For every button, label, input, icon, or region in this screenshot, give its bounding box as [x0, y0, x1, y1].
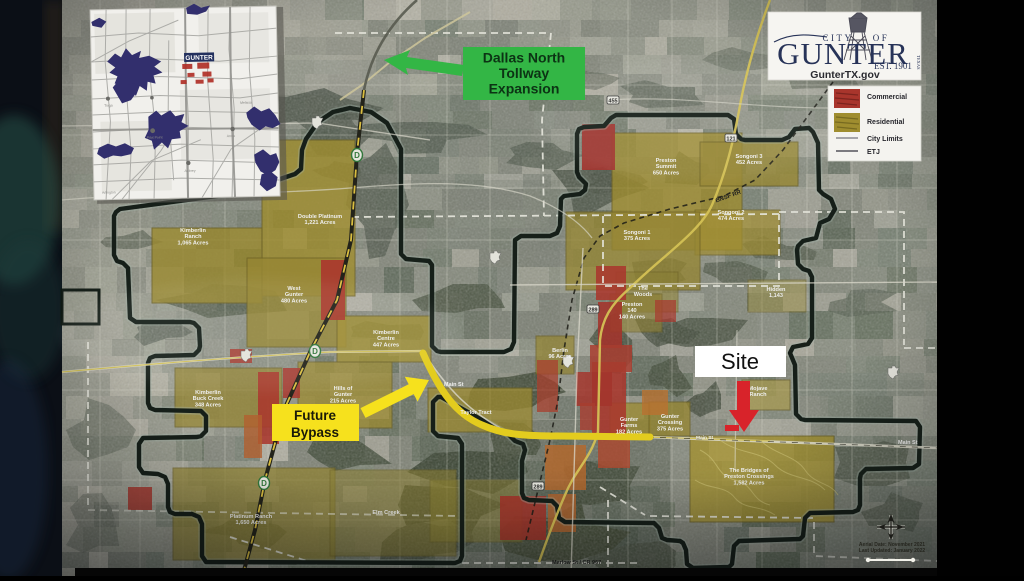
svg-text:City Limits: City Limits	[867, 136, 903, 143]
svg-text:Melissa: Melissa	[240, 101, 252, 105]
svg-text:Arlington: Arlington	[102, 190, 116, 194]
svg-text:Tioga: Tioga	[104, 104, 113, 108]
svg-text:Future: Future	[294, 408, 336, 423]
svg-text:Pilot Point: Pilot Point	[147, 135, 163, 139]
svg-text:Tollway: Tollway	[499, 65, 550, 81]
svg-text:Aubrey: Aubrey	[184, 169, 195, 173]
svg-text:TEXAS: TEXAS	[916, 55, 921, 70]
svg-text:EST. 1901: EST. 1901	[874, 61, 912, 71]
svg-text:Site: Site	[721, 349, 759, 374]
svg-text:Expansion: Expansion	[489, 81, 560, 97]
svg-text:Anna: Anna	[227, 134, 235, 138]
svg-text:GUNTER: GUNTER	[185, 54, 213, 62]
svg-text:Last Updated: January 2022: Last Updated: January 2022	[859, 548, 926, 554]
svg-text:Residential: Residential	[867, 119, 904, 126]
svg-text:Dallas North: Dallas North	[483, 50, 565, 66]
svg-text:Bypass: Bypass	[291, 425, 339, 440]
svg-text:GunterTX.gov: GunterTX.gov	[810, 69, 880, 81]
svg-text:Commercial: Commercial	[867, 94, 907, 101]
svg-text:ETJ: ETJ	[867, 149, 880, 156]
